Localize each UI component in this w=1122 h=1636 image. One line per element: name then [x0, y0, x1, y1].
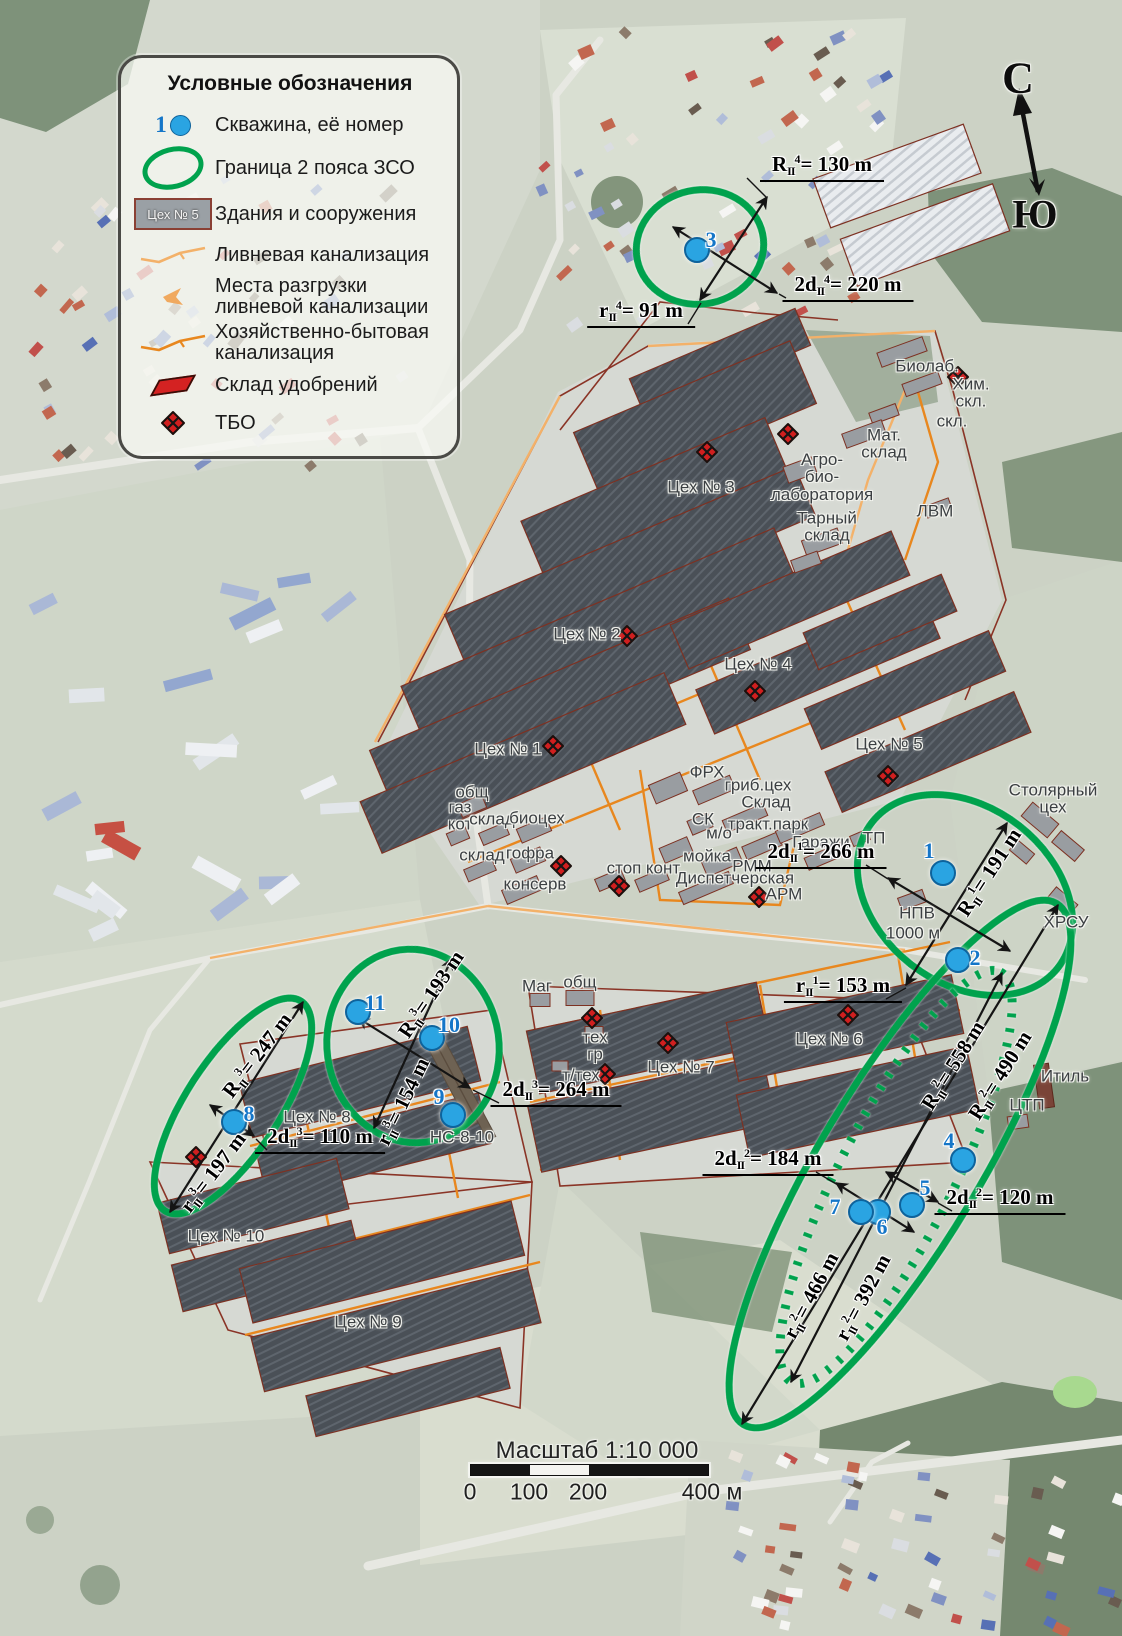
- legend-item-label: Хозяйственно-бытовая канализация: [215, 322, 429, 364]
- legend-item-fertilizer: Склад удобрений: [131, 366, 449, 404]
- scale-bar: [470, 1464, 709, 1476]
- legend-item-storm-sewer: Ливневая канализация: [131, 236, 449, 274]
- storm-outlet-icon: [131, 285, 215, 309]
- domestic-sewer-line-icon: [131, 332, 215, 354]
- building-icon: Цех № 5: [131, 198, 215, 230]
- legend-item-label: Здания и сооружения: [215, 204, 416, 225]
- compass-south-label: Ю: [1012, 191, 1057, 238]
- legend-item-label: Склад удобрений: [215, 375, 378, 396]
- tbo-icon: [131, 409, 215, 437]
- fertilizer-warehouse-icon: [131, 377, 215, 394]
- map-canvas: Биолаб.Хим. скл.скл.Мат. складАгро- био-…: [0, 0, 1122, 1636]
- scale-title: Масштаб 1:10 000: [496, 1437, 699, 1465]
- legend-item-tbo: ТБО: [131, 404, 449, 442]
- legend-item-label: Граница 2 пояса ЗСО: [215, 158, 415, 179]
- legend: Условные обозначения 1 Скважина, её номе…: [118, 55, 460, 459]
- legend-title: Условные обозначения: [131, 72, 449, 96]
- zone-ellipse-icon: [131, 147, 215, 189]
- scale-tick: 200: [569, 1479, 607, 1506]
- legend-item-label: Ливневая канализация: [215, 245, 429, 266]
- legend-item-domestic-sewer: Хозяйственно-бытовая канализация: [131, 320, 449, 366]
- compass-north-label: С: [1002, 53, 1034, 104]
- legend-item-buildings: Цех № 5 Здания и сооружения: [131, 192, 449, 236]
- well-icon: 1: [131, 112, 215, 138]
- legend-item-label: Скважина, её номер: [215, 115, 404, 136]
- storm-sewer-line-icon: [131, 244, 215, 266]
- legend-item-storm-outlet: Места разгрузки ливневой канализации: [131, 274, 449, 320]
- scale-tick: 0: [464, 1479, 477, 1506]
- scale-tick: 100: [510, 1479, 548, 1506]
- legend-item-label: Места разгрузки ливневой канализации: [215, 276, 428, 318]
- scale-tick: 400 м: [682, 1479, 743, 1506]
- leg d-item-zone: Граница 2 пояса ЗСО: [131, 144, 449, 192]
- legend-item-well: 1 Скважина, её номер: [131, 106, 449, 144]
- legend-item-label: ТБО: [215, 413, 256, 434]
